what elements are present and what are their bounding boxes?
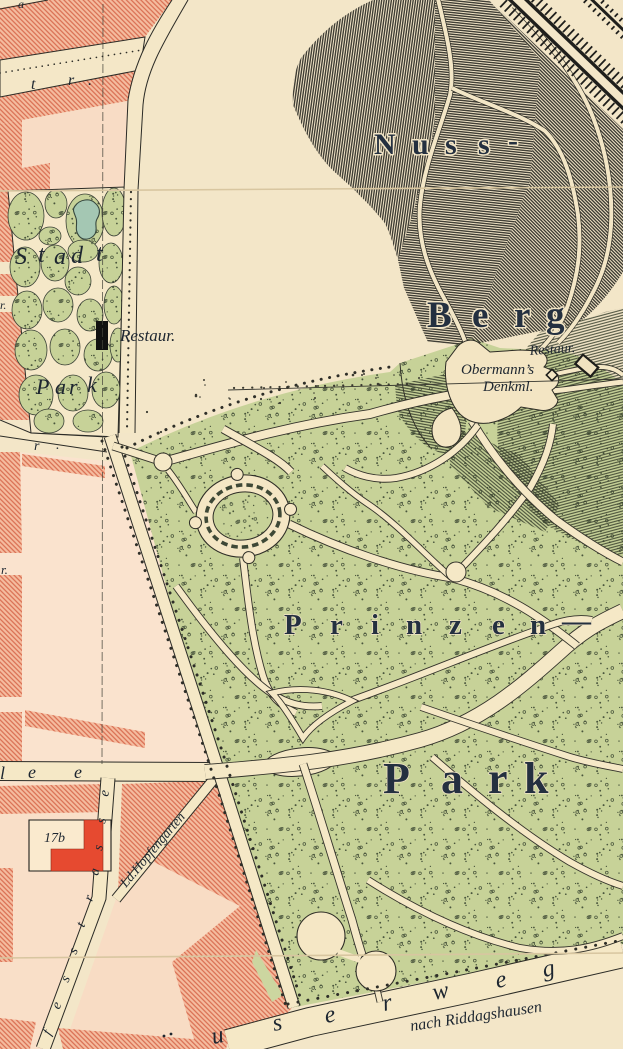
svg-text:r.: r. bbox=[1, 562, 8, 577]
svg-text:r: r bbox=[69, 374, 78, 399]
svg-text:a: a bbox=[441, 754, 463, 803]
svg-text:e: e bbox=[492, 609, 505, 641]
svg-text:r: r bbox=[68, 72, 75, 89]
svg-text:k: k bbox=[524, 754, 549, 803]
svg-text:u: u bbox=[412, 128, 429, 161]
svg-text:17b: 17b bbox=[44, 831, 65, 846]
svg-text:B: B bbox=[427, 295, 452, 336]
svg-text:.: . bbox=[88, 72, 92, 89]
svg-text:Obermann’s: Obermann’s bbox=[461, 362, 534, 378]
svg-text:a: a bbox=[55, 374, 66, 399]
svg-text:g: g bbox=[546, 295, 565, 336]
svg-text:l: l bbox=[0, 763, 5, 783]
svg-text:r.: r. bbox=[0, 298, 6, 312]
svg-text:-: - bbox=[508, 124, 518, 157]
svg-text:s: s bbox=[445, 128, 457, 161]
svg-text:t: t bbox=[31, 76, 36, 93]
svg-text:k: k bbox=[87, 372, 98, 397]
svg-text:z: z bbox=[449, 609, 462, 641]
svg-text:i: i bbox=[371, 609, 379, 641]
svg-text:d: d bbox=[71, 243, 84, 269]
svg-text:P: P bbox=[35, 374, 49, 399]
svg-text:n: n bbox=[406, 609, 422, 641]
svg-text:P: P bbox=[383, 754, 410, 803]
svg-text:e: e bbox=[472, 295, 488, 336]
svg-text:P: P bbox=[284, 609, 302, 641]
svg-text:e: e bbox=[74, 762, 82, 782]
svg-text:N: N bbox=[374, 128, 396, 161]
svg-text:s: s bbox=[478, 128, 490, 161]
svg-text:a: a bbox=[18, 0, 24, 11]
svg-text:.: . bbox=[56, 438, 60, 453]
svg-text:r: r bbox=[330, 609, 343, 641]
svg-text:r: r bbox=[34, 439, 40, 454]
svg-text:Denkml.: Denkml. bbox=[482, 379, 533, 395]
svg-text:Restaur.: Restaur. bbox=[119, 326, 175, 345]
svg-text:e: e bbox=[28, 762, 36, 782]
svg-text:S: S bbox=[15, 244, 27, 270]
svg-text:r: r bbox=[488, 754, 508, 803]
svg-text:r: r bbox=[514, 295, 530, 336]
svg-text:a: a bbox=[54, 244, 66, 270]
svg-text:—: — bbox=[561, 605, 592, 637]
svg-text:n: n bbox=[530, 609, 546, 641]
